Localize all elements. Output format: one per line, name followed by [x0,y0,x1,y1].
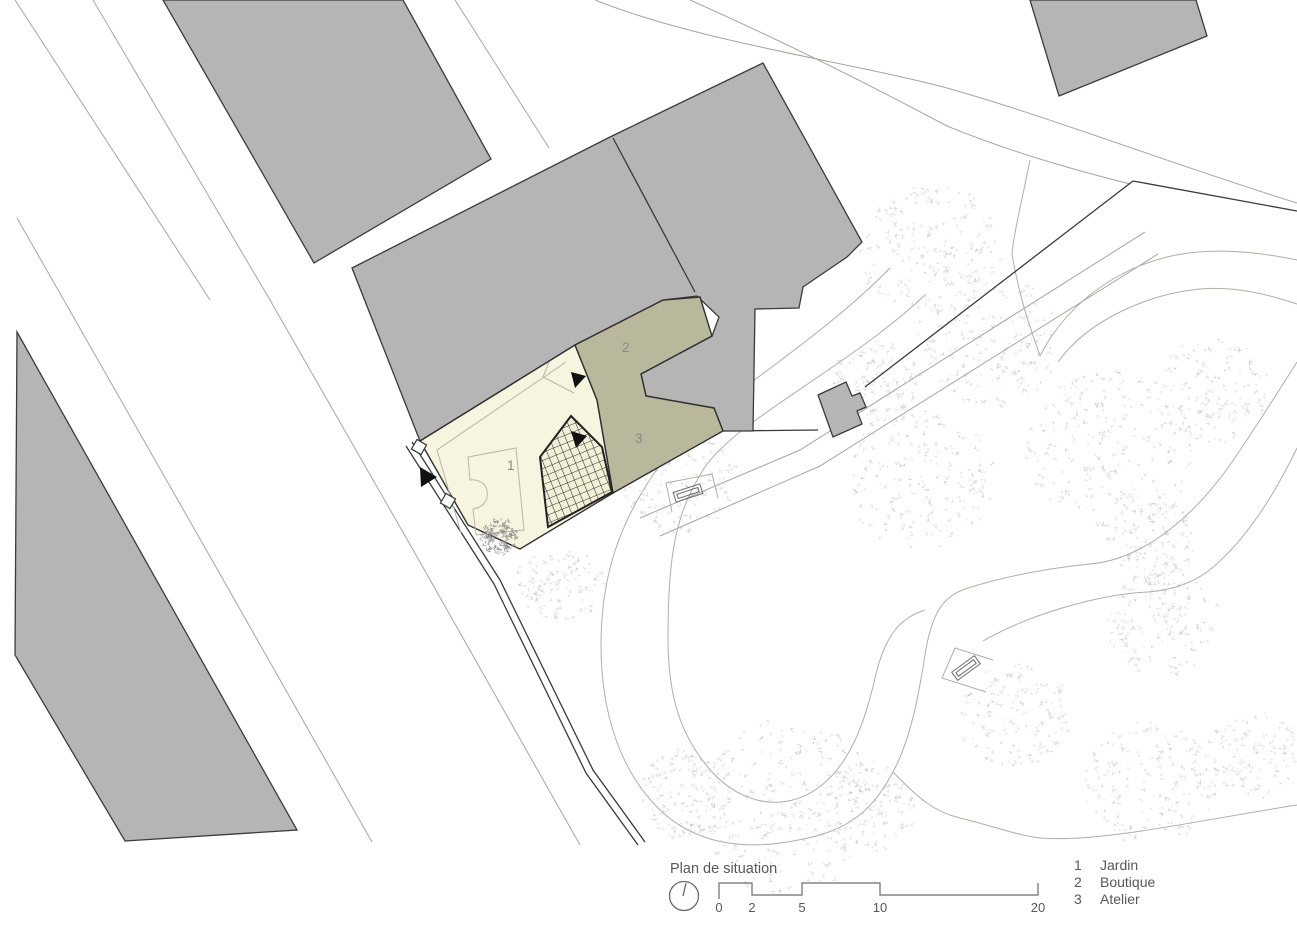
plan-title: Plan de situation [670,861,777,877]
scale-tick-label: 2 [748,900,755,915]
scale-tick-label: 10 [873,900,887,915]
area-label-boutique: 2 [622,340,630,355]
legend-item-label: Jardin [1100,857,1138,873]
scale-tick-label: 20 [1031,900,1045,915]
legend-item-number: 1 [1074,857,1082,873]
legend-item-label: Atelier [1100,891,1140,907]
legend-item-number: 2 [1074,874,1082,890]
legend-item-number: 3 [1074,891,1082,907]
site-plan-page: 1 2 3 Plan de situation 0 2 5 10 20 1 Ja… [0,0,1297,941]
area-label-atelier: 3 [635,431,643,446]
legend-item-label: Boutique [1100,874,1155,890]
area-label-jardin: 1 [507,458,515,473]
scale-tick-label: 0 [715,900,722,915]
site-plan-drawing: 1 2 3 Plan de situation 0 2 5 10 20 1 Ja… [0,0,1297,941]
scale-tick-label: 5 [798,900,805,915]
